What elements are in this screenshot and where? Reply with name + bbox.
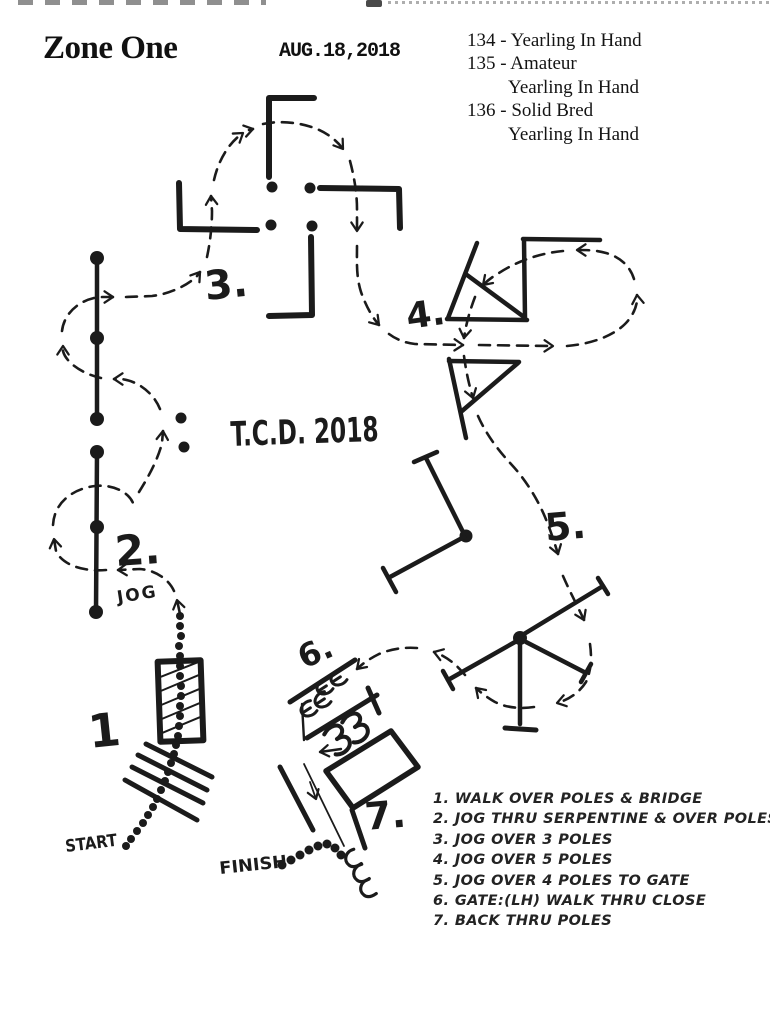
course-diagram: 1 2. 3. 4. 5. 6. 7. JOG START FINISH T.C…: [0, 0, 770, 1024]
gate-hinge-squiggles: [298, 669, 371, 757]
obstacle-number-7: 7.: [363, 792, 408, 839]
scanned-course-sheet: Zone One AUG.18,2018 134 - Yearling In H…: [0, 0, 770, 1024]
obstacle-6-gate: [290, 660, 379, 757]
finish-label: FINISH: [218, 852, 288, 879]
obstacle-number-4: 4.: [404, 292, 448, 338]
obstacle-number-5: 5.: [543, 503, 588, 550]
walk-path-dots: [122, 612, 185, 850]
finish-dots: [278, 840, 346, 870]
start-label: START: [64, 831, 118, 857]
jog-label: JOG: [115, 582, 159, 608]
course-center-title: T.C.D. 2018: [230, 410, 379, 455]
obstacle-number-1: 1: [86, 702, 123, 759]
center-t-poles: [383, 452, 473, 592]
obstacle-number-6: 6.: [292, 628, 339, 677]
backthru-squiggles: [342, 849, 378, 900]
obstacle-4-poles: [447, 239, 600, 320]
obstacle-number-2: 2.: [113, 524, 161, 576]
obstacle-number-3: 3.: [202, 260, 250, 310]
